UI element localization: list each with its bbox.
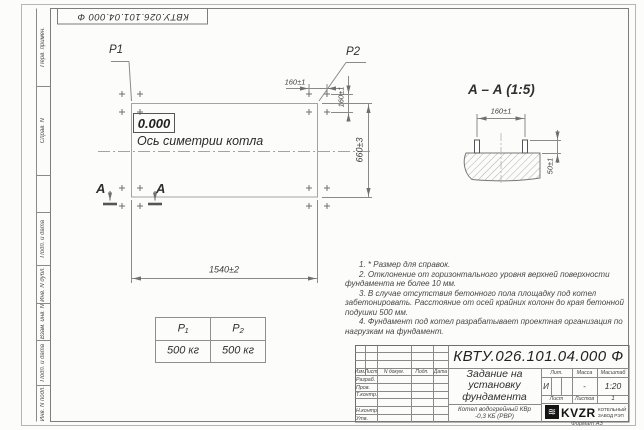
company-name-line1: КОТЕЛЬНЫЙ (598, 407, 626, 413)
drawing-sheet: КВТУ.026.101.04.000 Ф Перв. примен. Спра… (0, 0, 644, 430)
company-name: КОТЕЛЬНЫЙ ЗАВОД РЭП (598, 407, 626, 418)
tb-rev-header-data: Дата (433, 368, 448, 376)
top-stamp-code: КВТУ.026.101.04.000 Ф (77, 11, 189, 22)
tb-sig-utv: Утв. (356, 415, 380, 422)
loads-table-value-1: 500 кг (167, 346, 199, 357)
margin-field-perv-primen: Перв. примен. (36, 8, 50, 86)
notes-block: 1. * Размер для справок. 2. Отклонение о… (345, 260, 629, 336)
tb-lit-label: Лит. (541, 368, 572, 377)
margin-label: Перв. примен. (40, 27, 46, 67)
margin-field-podp-data-2: Подп. и дата (36, 340, 50, 385)
note-4: 4. Фундамент под котел разрабатывает про… (345, 317, 629, 336)
margin-field-podp-data-1: Подп. и дата (36, 212, 50, 265)
margin-field-inv-podl: Инв. N подл. (36, 385, 50, 422)
kvzr-logo-text: KVZR (561, 406, 596, 420)
section-dim-height-label: 50±1 (546, 158, 554, 175)
tb-sig-nkontr: Н.контр. (356, 407, 380, 414)
tb-sheets-label: Листов (572, 395, 597, 403)
tb-mass-value: - (572, 377, 597, 395)
tb-sig-blank (356, 399, 380, 406)
tb-scale-label: Масштаб (597, 368, 629, 377)
tb-designation: КВТУ.026.101.04.000 Ф (448, 345, 629, 368)
margin-field-vzam-inv: Взам. инв. N (36, 303, 50, 340)
tb-mass-label: Масса (572, 368, 597, 377)
tb-rev-header-list: Лист (365, 368, 377, 376)
loads-table-header-2: P₂ (232, 324, 244, 335)
company-name-line2: ЗАВОД РЭП (598, 413, 626, 419)
margin-field-inv-dubl: Инв. N дубл. (36, 265, 50, 303)
tb-rev-header-podp: Подп. (411, 368, 433, 376)
tb-sig-tkontr: Т.контр. (356, 391, 380, 398)
tb-sheet-label: Лист (541, 395, 572, 403)
dim-height-label: 660±3 (356, 138, 365, 163)
loads-table-header-1: P₁ (178, 324, 189, 335)
dim-bolt-spacing-x-label: 160±1 (285, 78, 306, 86)
tb-product-name: Котел водогрейный КВр -0,3 КБ (РВР) (448, 404, 541, 422)
format-note: Формат А3 (571, 422, 603, 428)
note-3: 3. В случае отсутствия бетонного пола пл… (345, 289, 629, 318)
tb-lit-value: И (541, 377, 551, 395)
section-cut-letter-right: А (156, 182, 165, 195)
kvzr-logo-icon: ≋ (545, 405, 559, 419)
loads-table-value-2: 500 кг (222, 346, 254, 357)
section-view-title: А – А (1:5) (468, 83, 535, 97)
load-point-2-label: P2 (346, 47, 360, 59)
section-dim-spacing-label: 160±1 (491, 107, 512, 115)
tb-sig-prov: Пров. (356, 384, 380, 391)
axis-label: Ось симетрии котла (137, 135, 263, 148)
margin-label: Инв. N дубл. (40, 267, 46, 302)
level-mark-box: 0.000 (133, 113, 175, 133)
anchor-bolt-markers (119, 91, 330, 209)
margin-label: Инв. N подл. (40, 386, 46, 421)
margin-label: Подп. и дата (40, 344, 46, 382)
level-mark: 0.000 (138, 116, 171, 131)
tb-doc-title: Задание на установку фундамента (448, 368, 541, 404)
section-cut-letter-left: А (96, 182, 105, 195)
margin-label: Подп. и дата (40, 220, 46, 258)
margin-label: Справ. N (40, 118, 46, 143)
load-point-1-label: P1 (109, 45, 123, 57)
tb-rev-header-ndokum: N докум. (377, 368, 411, 376)
margin-field-sprav-n: Справ. N (36, 86, 50, 175)
note-2: 2. Отклонение от горизонтального уровня … (345, 270, 629, 289)
top-stamp: КВТУ.026.101.04.000 Ф (57, 8, 208, 24)
dimension-lines (111, 62, 372, 284)
tb-scale-value: 1:20 (597, 377, 629, 395)
dim-width-label: 1540±2 (209, 266, 239, 275)
tb-sheets-value: 1 (597, 395, 629, 403)
margin-label: Взам. инв. N (40, 304, 46, 339)
note-1: 1. * Размер для справок. (345, 260, 629, 270)
dim-bolt-spacing-y-label: 160±1 (337, 87, 345, 108)
tb-rev-header-izm: Изм. (355, 368, 365, 376)
tb-sig-razrab: Разраб. (356, 376, 380, 383)
